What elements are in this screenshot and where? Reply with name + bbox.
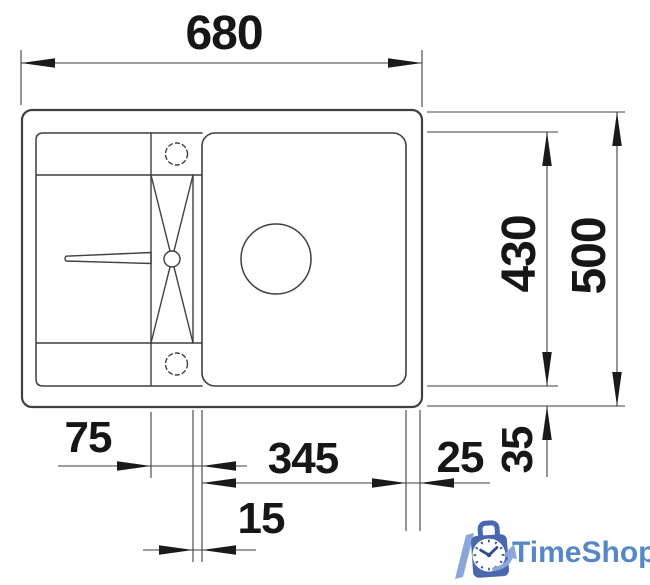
- arrow-down: [612, 372, 622, 406]
- tap-hole-top: [166, 143, 188, 165]
- dim-label-bowl-depth: 430: [496, 215, 544, 292]
- timeshop-logo-icon: [455, 522, 517, 579]
- timeshop-logo-text: TimeShop: [512, 538, 650, 568]
- bowl-outline: [202, 133, 406, 386]
- arrow-right: [388, 58, 422, 68]
- dim-label-front-margin: 35: [496, 427, 540, 474]
- arrow-left: [202, 478, 236, 488]
- arrow-down: [542, 352, 552, 386]
- sink-outer-outline: [22, 110, 422, 407]
- arrow-right: [117, 461, 151, 471]
- dim-label-ledge-width: 75: [65, 416, 112, 460]
- sink-drawing-svg: [0, 0, 650, 585]
- arrow-left: [202, 461, 236, 471]
- arrow-right: [372, 478, 406, 488]
- arrow-up: [542, 406, 552, 440]
- dim-label-divider-gap: 15: [238, 497, 285, 541]
- rib-center-joint: [164, 251, 180, 267]
- arrow-right: [159, 545, 193, 555]
- sink-outline-group: [22, 110, 422, 407]
- arrow-left: [202, 545, 236, 555]
- dimension-lines-group: [21, 50, 625, 562]
- sink-drawing-page: 680 430 500 75 345 25 35 15 TimeShop: [0, 0, 650, 585]
- drain-hole: [241, 224, 311, 294]
- logo-stripe: [455, 533, 474, 579]
- dim-label-overall-width: 680: [185, 10, 262, 58]
- arrow-left: [21, 58, 55, 68]
- tap-hole-bottom: [166, 353, 188, 375]
- arrow-up: [612, 112, 622, 146]
- clock-bag-icon: [470, 522, 510, 578]
- dim-label-bowl-width: 345: [268, 437, 338, 481]
- arrow-up: [542, 132, 552, 166]
- dim-label-overall-depth: 500: [566, 217, 614, 294]
- dim-label-right-margin: 25: [437, 436, 484, 480]
- faucet-lever: [65, 253, 151, 264]
